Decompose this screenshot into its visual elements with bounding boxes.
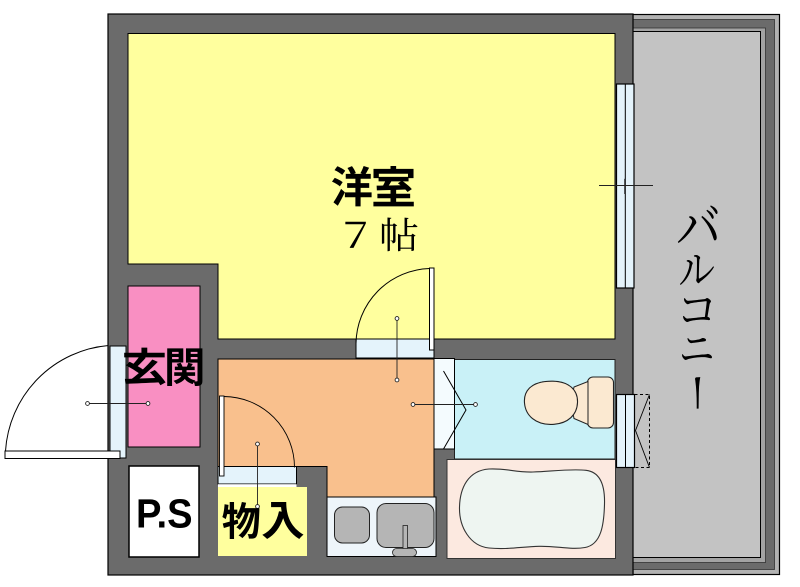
svg-text:P.S: P.S	[136, 491, 193, 537]
